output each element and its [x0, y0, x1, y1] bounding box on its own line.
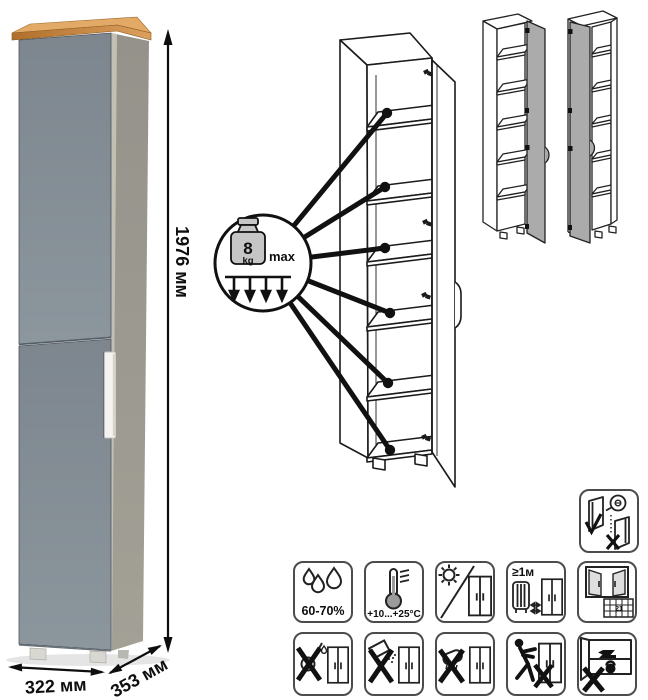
diagram-open-door	[432, 60, 455, 487]
product-info-sheet: 1976 мм 322 мм 353 мм	[0, 0, 648, 700]
diagram-foot	[373, 458, 385, 470]
wardrobe-glyph	[542, 579, 562, 615]
load-qualifier: max	[269, 249, 296, 264]
no-pushing-icon	[506, 632, 566, 696]
width-dimension: 322 мм	[8, 664, 105, 698]
no-pouring-liquids-icon	[293, 632, 353, 696]
double-arrow-icon	[531, 603, 540, 613]
wardrobe-glyph	[470, 647, 490, 683]
width-label: 322 мм	[24, 674, 87, 697]
heat-source-distance-icon: ≥1м	[506, 561, 566, 623]
door-variant-left-diagram	[568, 11, 617, 243]
no-direct-sunlight-icon	[435, 561, 495, 623]
cabinet-upper-door	[19, 33, 111, 344]
thermometer-icon	[386, 569, 409, 609]
exploded-shelf-diagram: 8 kg max	[210, 15, 470, 515]
ventilation-icon: 21	[577, 561, 637, 623]
wardrobe-glyph	[399, 647, 419, 683]
cabinet-foot	[118, 650, 129, 659]
humidity-label: 60-70%	[301, 604, 344, 618]
wardrobe-glyph	[328, 647, 348, 683]
load-limit-badge: 8 kg max	[215, 215, 311, 311]
humidity-icon: 60-70%	[293, 561, 353, 623]
load-unit: kg	[242, 256, 253, 267]
calendar-icon: 21	[604, 599, 633, 617]
water-drops-icon	[304, 568, 341, 592]
sun-icon	[439, 565, 460, 586]
no-abrasive-cleaners-icon	[364, 632, 424, 696]
cabinet-photo-render: 1976 мм 322 мм 353 мм	[0, 0, 210, 700]
wardrobe-glyph	[469, 577, 491, 616]
radiator-icon	[513, 582, 529, 613]
no-wet-cloth-icon	[435, 632, 495, 696]
depth-dimension: 353 мм	[107, 645, 171, 700]
diagram-foot	[415, 454, 427, 466]
person-pushing-icon	[515, 639, 535, 680]
cabinet-foot	[90, 651, 106, 663]
open-window-icon	[586, 567, 628, 597]
cabinet-lower-door	[19, 339, 111, 650]
height-label: 1976 мм	[172, 226, 192, 298]
calendar-day-label: 21	[615, 606, 623, 613]
cabinet-side-panel	[111, 33, 149, 651]
door-variant-diagrams	[473, 2, 645, 260]
diagram-door-handle	[455, 282, 461, 328]
temperature-label: +10...+25°C	[367, 609, 420, 620]
no-heavy-objects-icon	[577, 632, 637, 696]
door-variant-right-diagram	[483, 14, 549, 243]
door-adjustment-icon	[579, 489, 639, 553]
distance-label: ≥1м	[512, 565, 534, 579]
height-dimension: 1976 мм	[164, 29, 193, 653]
cabinet-foot	[30, 648, 46, 660]
temperature-range-icon: +10...+25°C	[364, 561, 424, 623]
